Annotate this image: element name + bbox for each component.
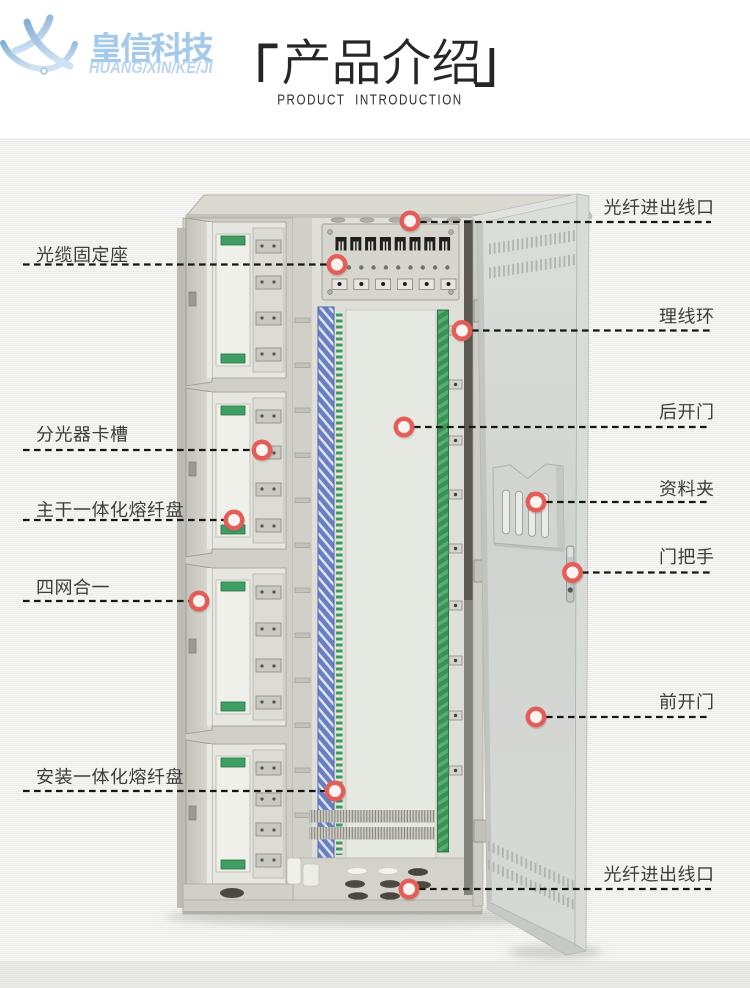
svg-text:HUANG/XIN/KE/JI: HUANG/XIN/KE/JI bbox=[89, 59, 213, 77]
svg-text:PRODUCT INTRODUCTION: PRODUCT INTRODUCTION bbox=[277, 91, 462, 108]
